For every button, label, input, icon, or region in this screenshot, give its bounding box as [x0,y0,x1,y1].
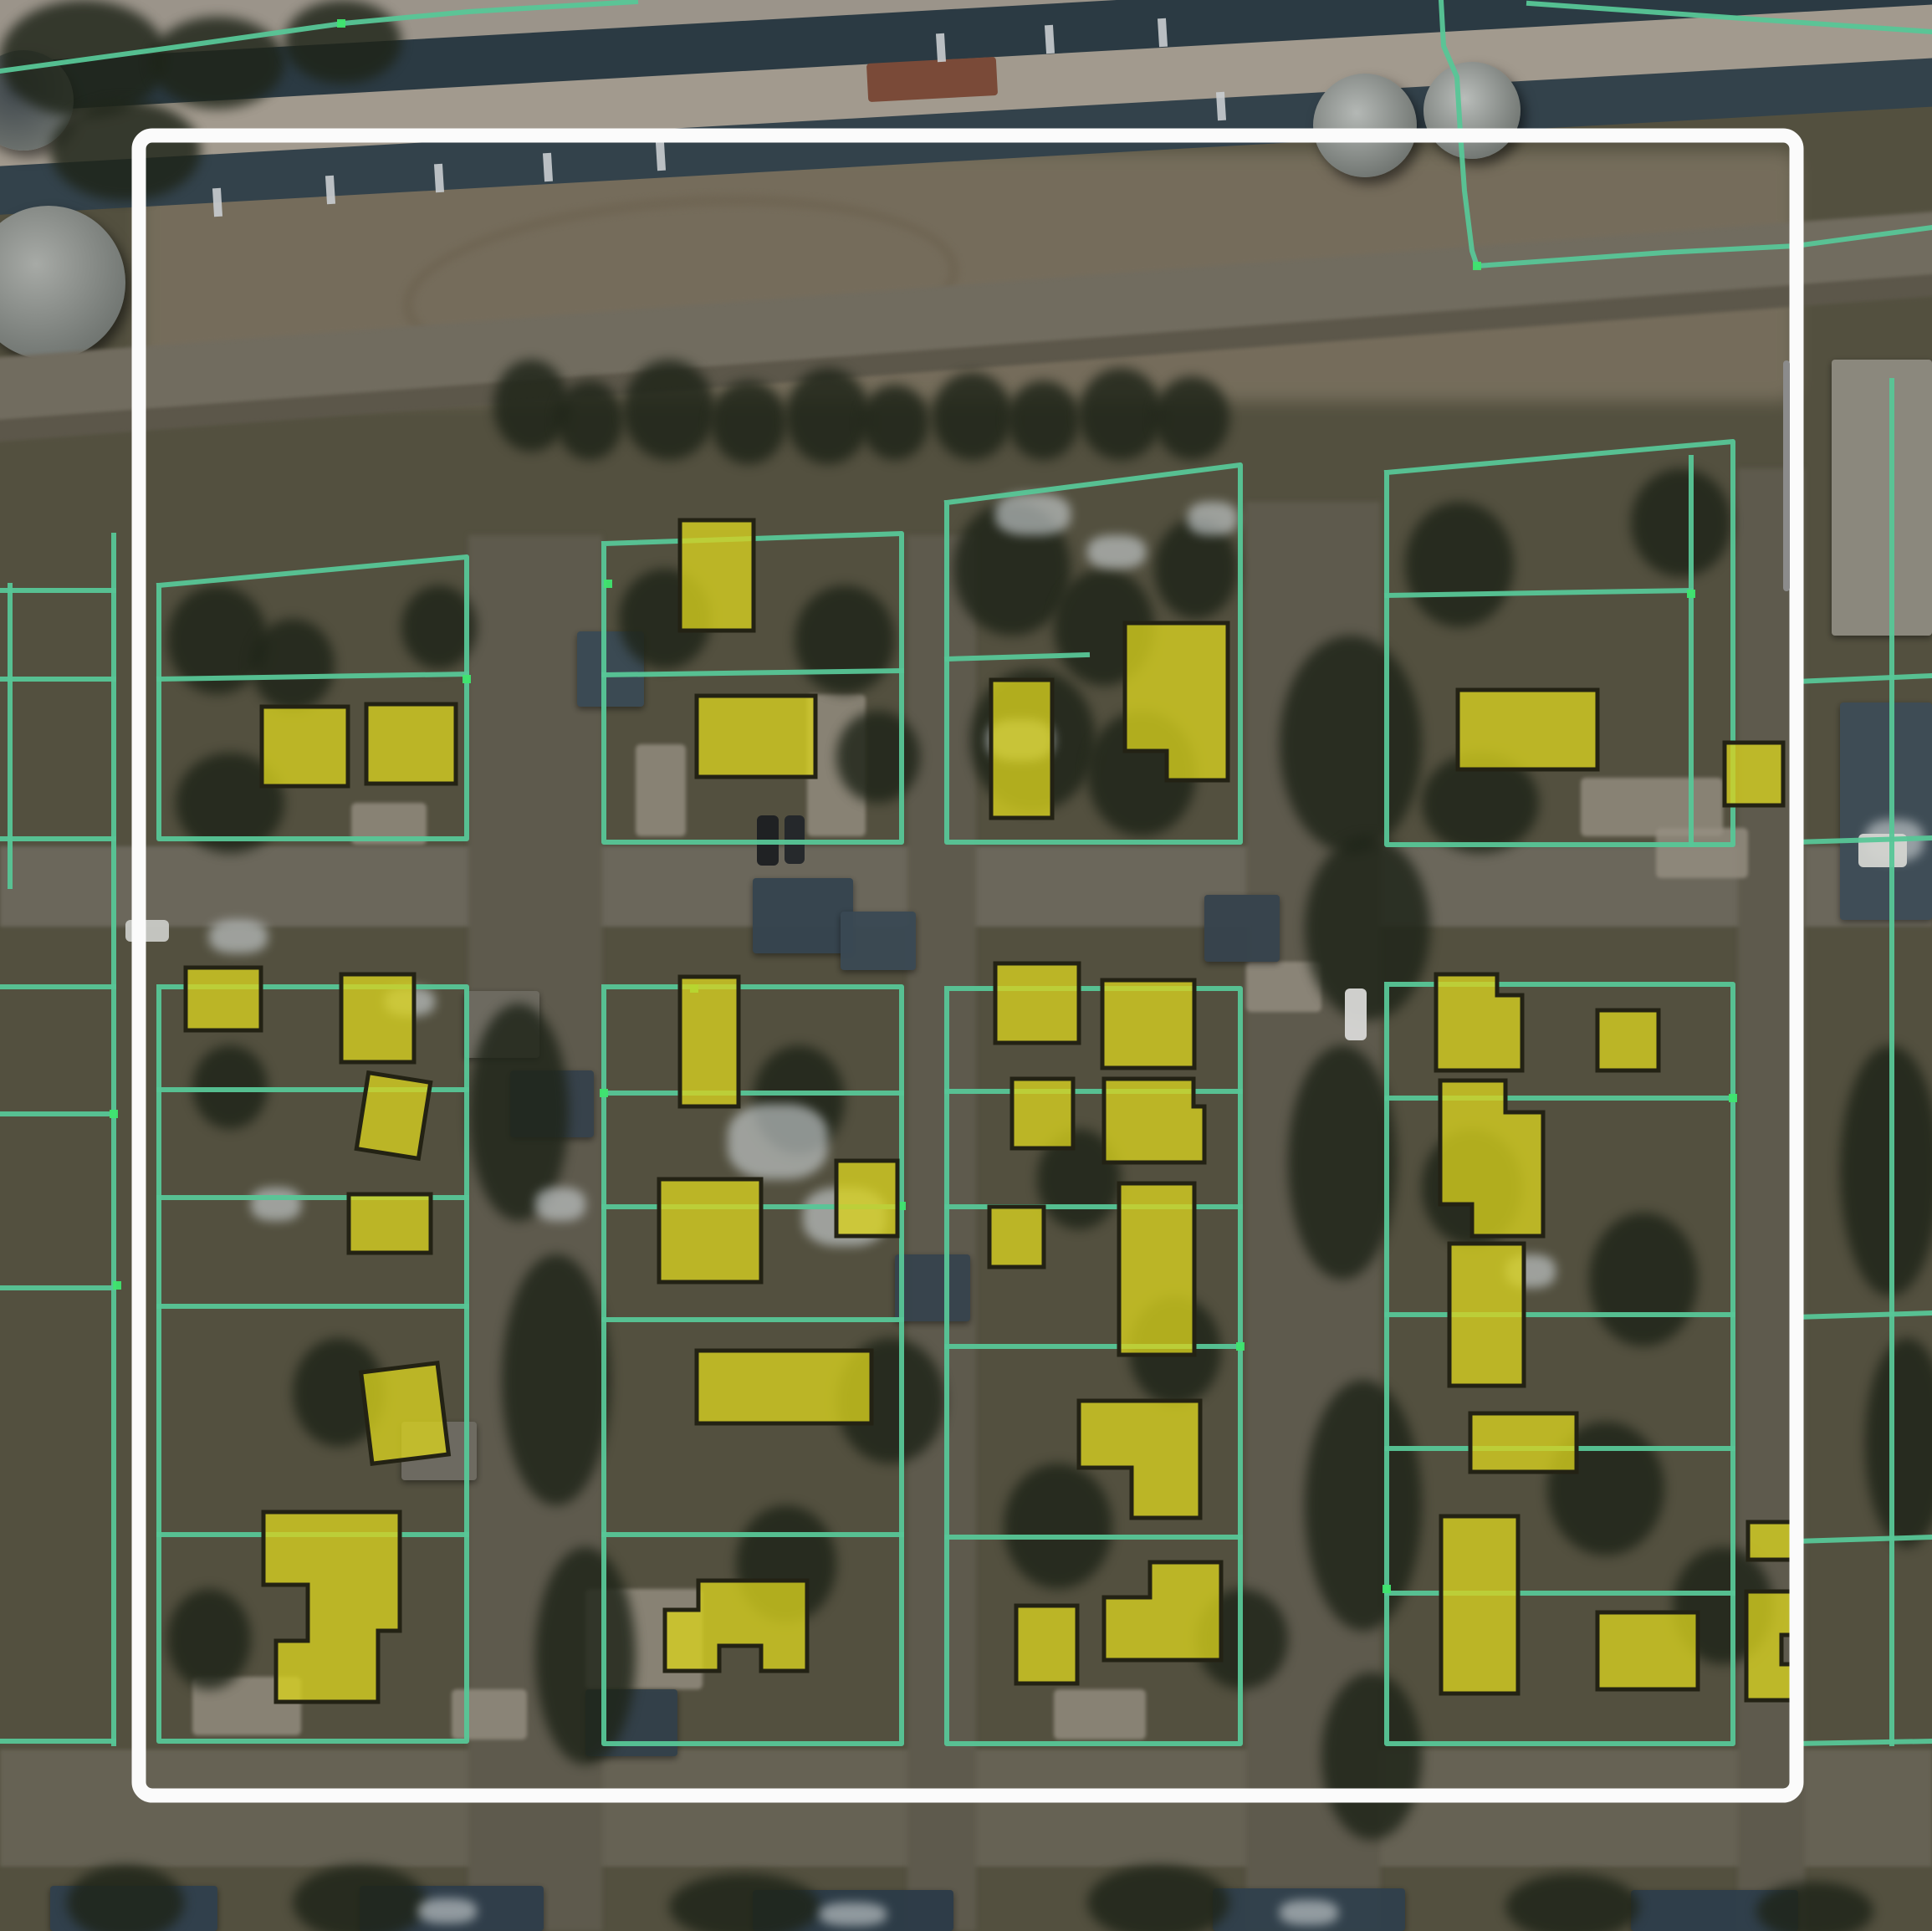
building-footprint[interactable] [349,1194,431,1253]
building-footprint[interactable] [1746,1591,1794,1700]
building-footprint[interactable] [1441,1516,1518,1693]
building-footprint[interactable] [991,680,1052,818]
scrollbar-thumb[interactable] [1783,360,1790,591]
parcel-vertex-dot [604,580,612,588]
parcel-boundary-line [1529,3,1932,32]
building-footprint[interactable] [341,974,414,1062]
building-footprint[interactable] [1470,1413,1577,1472]
parcel-boundary-line [1797,1313,1932,1317]
building-footprint[interactable] [680,520,754,631]
parcel-boundary-line [159,557,467,839]
building-footprint[interactable] [697,696,815,777]
building-footprint[interactable] [995,963,1079,1043]
parcel-vertex-dot [600,1089,608,1097]
parcel-boundary-line [0,2,636,71]
building-footprint[interactable] [1440,1080,1543,1236]
parcel-vertex-dot [1729,1094,1737,1102]
aerial-annotation-canvas [0,0,1932,1931]
parcel-boundary-line [159,674,467,679]
parcel-boundary-line [1797,676,1932,682]
annotation-overlay [0,0,1932,1931]
building-footprint[interactable] [1725,743,1783,805]
building-footprint[interactable] [361,1363,449,1464]
building-footprint[interactable] [1449,1244,1524,1386]
building-footprint[interactable] [1597,1010,1659,1070]
building-footprint[interactable] [836,1161,897,1236]
parcel-vertex-dot [113,1281,121,1290]
building-footprint[interactable] [659,1179,761,1282]
parcel-boundary-line [604,671,902,675]
building-footprint[interactable] [989,1207,1044,1267]
building-footprint[interactable] [697,1351,871,1423]
parcel-boundary-line [1477,227,1932,266]
building-footprint[interactable] [366,704,456,784]
building-footprint[interactable] [1012,1079,1073,1148]
building-footprint[interactable] [1079,1401,1200,1518]
building-footprint[interactable] [1458,690,1597,769]
parcel-vertex-dot [1687,590,1695,598]
building-footprint[interactable] [1119,1183,1194,1355]
building-footprint[interactable] [186,968,261,1030]
parcel-vertex-dot [110,1110,118,1118]
parcel-vertex-dot [337,19,345,28]
parcel-vertex-dot [463,675,471,683]
building-footprint[interactable] [263,1512,400,1702]
building-footprint[interactable] [1102,980,1194,1068]
building-footprint[interactable] [1436,974,1522,1070]
building-footprint[interactable] [356,1073,430,1159]
parcel-vertex-dot [1236,1342,1245,1351]
building-footprint[interactable] [1104,1079,1204,1162]
parcel-boundary-line [1797,1537,1932,1541]
parcel-vertex-dot [1473,262,1481,270]
parcel-boundary-line [1797,838,1932,842]
building-footprint[interactable] [262,707,348,786]
parcel-boundary-line [1387,442,1733,845]
building-footprint[interactable] [680,977,739,1106]
building-footprint[interactable] [1125,623,1228,780]
building-footprint[interactable] [1748,1522,1796,1560]
parcel-boundary-line [1387,590,1691,595]
parcel-boundary-line [1797,1741,1932,1744]
building-footprint[interactable] [1597,1612,1698,1689]
parcel-vertex-dot [1383,1585,1391,1593]
building-footprint[interactable] [1104,1562,1221,1660]
building-footprint[interactable] [1016,1606,1077,1683]
building-footprint[interactable] [665,1581,807,1671]
parcel-boundary-line [947,655,1087,659]
